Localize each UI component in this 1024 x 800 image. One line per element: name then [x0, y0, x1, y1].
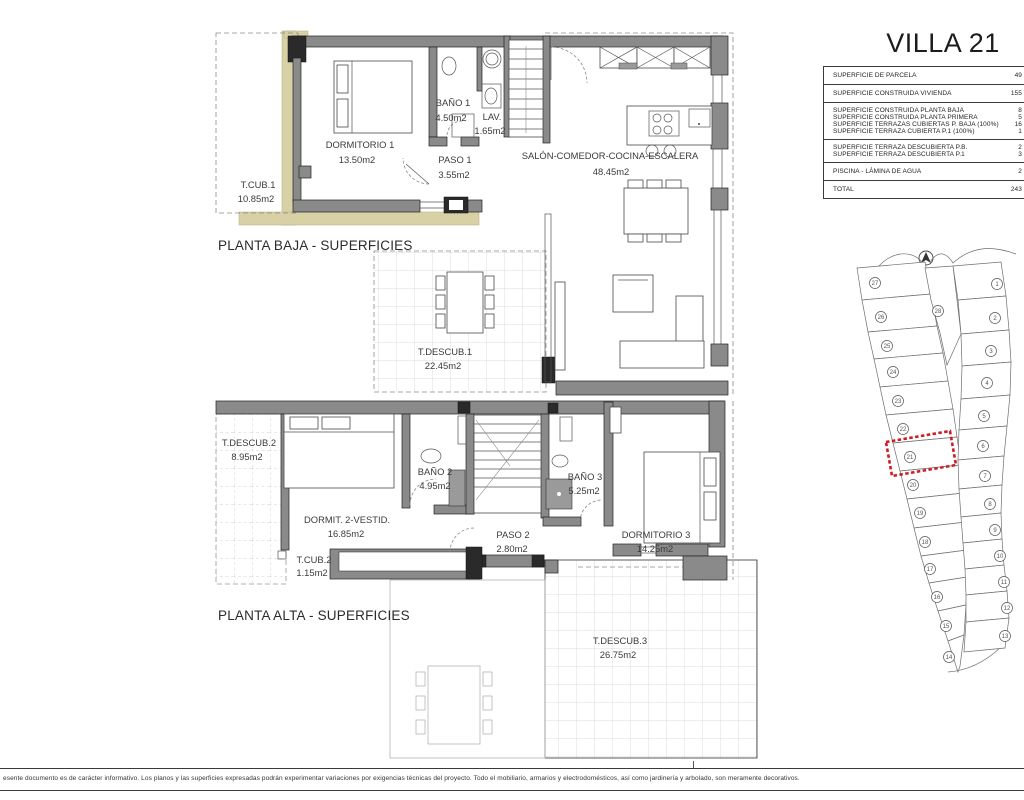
room-area: 1.15m2: [296, 567, 327, 578]
row-label: SUPERFICIE CONSTRUIDA PLANTA BAJA: [833, 107, 964, 114]
row-value: 8: [974, 107, 1022, 114]
villa-title: VILLA 21: [823, 28, 1024, 59]
bed-dormitorio3: [610, 407, 720, 543]
plot-number: 12: [1004, 606, 1011, 612]
table-group: TOTAL243: [824, 181, 1024, 199]
plot-number: 25: [884, 344, 891, 350]
plot-number: 16: [934, 595, 941, 601]
room-area: 26.75m2: [600, 649, 636, 660]
room-label: LAV.: [483, 111, 502, 122]
terrace-table: [436, 272, 494, 333]
room-area: 16.85m2: [328, 528, 364, 539]
room-label: SALÓN-COMEDOR-COCINA-ESCALERA: [522, 150, 699, 161]
plot-polygon: [958, 296, 1009, 334]
room-label: DORMITORIO 3: [622, 529, 691, 540]
room-label: DORMITORIO 1: [326, 139, 395, 150]
room-label: DORMIT. 2-VESTID.: [304, 514, 390, 525]
dining-table: [624, 180, 688, 242]
room-area: 10.85m2: [238, 193, 274, 204]
table-group: SUPERFICIE DE PARCELA49: [824, 67, 1024, 85]
table-row: SUPERFICIE DE PARCELA49: [824, 72, 1024, 79]
room-label: BAÑO 2: [418, 466, 452, 477]
room-area: 13.50m2: [339, 154, 375, 165]
plot-polygon: [857, 262, 931, 300]
plot-number: 19: [917, 511, 924, 517]
table-row: SUPERFICIE TERRAZA DESCUBIERTA P.13: [824, 151, 1024, 158]
table-row: SUPERFICIE CONSTRUIDA PLANTA PRIMERA5: [824, 114, 1024, 121]
plot-number: 22: [900, 427, 907, 433]
row-label: PISCINA - LÁMINA DE AGUA: [833, 168, 921, 175]
terrace-tdescub3: [545, 560, 757, 758]
row-value: 2: [974, 168, 1022, 175]
row-label: SUPERFICIE TERRAZA DESCUBIERTA P.B.: [833, 144, 968, 151]
upper-stairs: [474, 415, 541, 513]
room-label: PASO 1: [438, 154, 471, 165]
plot-number: 23: [895, 399, 902, 405]
room-area: 14.25m2: [637, 543, 673, 554]
disclaimer-text: esente documento es de carácter informat…: [3, 775, 800, 782]
ground-plan-caption: PLANTA BAJA - SUPERFICIES: [218, 238, 413, 253]
bath2-fixtures: [410, 416, 466, 506]
sliding-door-leaf: [555, 282, 565, 370]
row-value: 5: [974, 114, 1022, 121]
plot-number: 17: [927, 567, 934, 573]
table-row: SUPERFICIE TERRAZA CUBIERTA P.1 (100%)1: [824, 128, 1024, 135]
room-label: BAÑO 3: [568, 471, 602, 482]
table-row: SUPERFICIE TERRAZAS CUBIERTAS P. BAJA (1…: [824, 121, 1024, 128]
room-label: T.CUB.1: [241, 179, 276, 190]
room-label: PASO 2: [496, 529, 529, 540]
row-label: TOTAL: [833, 186, 854, 193]
row-value: 1: [974, 128, 1022, 135]
table-group: SUPERFICIE CONSTRUIDA PLANTA BAJA8SUPERF…: [824, 103, 1024, 140]
plot-number: 14: [946, 655, 953, 661]
plot-number: 26: [878, 315, 885, 321]
table-row: TOTAL243: [824, 186, 1024, 193]
outdoor-table: [416, 666, 492, 744]
table-row: PISCINA - LÁMINA DE AGUA2: [824, 168, 1024, 175]
kitchen-units: [600, 47, 710, 69]
room-area: 48.45m2: [593, 166, 629, 177]
ground-floor-plan: DORMITORIO 1 13.50m2 BAÑO 1 4.50m2 LAV. …: [216, 31, 733, 396]
row-value: 16: [974, 121, 1022, 128]
site-plan: 2726252423222120191817161514123456789101…: [857, 249, 1016, 672]
plot-number: 11: [1001, 580, 1008, 586]
room-area: 8.95m2: [231, 451, 262, 462]
plot-number: 20: [910, 483, 917, 489]
room-area: 1.65m2: [474, 125, 505, 136]
site-plots: 2726252423222120191817161514123456789101…: [857, 262, 1013, 672]
table-row: SUPERFICIE CONSTRUIDA PLANTA BAJA8: [824, 107, 1024, 114]
floorplan-sheet: DORMITORIO 1 13.50m2 BAÑO 1 4.50m2 LAV. …: [0, 0, 1024, 800]
room-area: 3.55m2: [438, 169, 469, 180]
table-group: PISCINA - LÁMINA DE AGUA2: [824, 163, 1024, 181]
row-value: 49: [974, 72, 1022, 79]
room-area: 2.80m2: [496, 543, 527, 554]
plot-number: 13: [1002, 634, 1009, 640]
row-label: SUPERFICIE CONSTRUIDA VIVIENDA: [833, 90, 952, 97]
plot-number: 21: [907, 455, 914, 461]
room-area: 22.45m2: [425, 360, 461, 371]
disclaimer-bar: esente documento es de carácter informat…: [0, 768, 1024, 791]
plot-number: 18: [922, 540, 929, 546]
plot-number: 28: [935, 309, 942, 315]
room-label: T.DESCUB.3: [593, 635, 647, 646]
row-label: SUPERFICIE TERRAZA DESCUBIERTA P.1: [833, 151, 965, 158]
bed-dormitorio2: [284, 414, 394, 488]
row-value: 155: [974, 90, 1022, 97]
room-label: T.DESCUB.2: [222, 437, 276, 448]
row-label: SUPERFICIE TERRAZA CUBIERTA P.1 (100%): [833, 128, 975, 135]
row-value: 2: [974, 144, 1022, 151]
room-label: T.CUB.2: [297, 554, 332, 565]
table-group: SUPERFICIE CONSTRUIDA VIVIENDA155: [824, 85, 1024, 103]
row-value: 243: [974, 186, 1022, 193]
room-label: T.DESCUB.1: [418, 346, 472, 357]
table-row: SUPERFICIE CONSTRUIDA VIVIENDA155: [824, 90, 1024, 97]
bath1-fixtures: [442, 50, 501, 137]
sofa-set: [613, 275, 704, 368]
plot-number: 27: [872, 281, 879, 287]
upper-plan-caption: PLANTA ALTA - SUPERFICIES: [218, 608, 410, 623]
ground-stairs: [509, 40, 543, 137]
bed-dormitorio1: [334, 61, 412, 133]
plot-number: 24: [890, 370, 897, 376]
table-group: SUPERFICIE TERRAZA DESCUBIERTA P.B.2SUPE…: [824, 140, 1024, 163]
surface-summary-table: SUPERFICIE DE PARCELA49SUPERFICIE CONSTR…: [823, 66, 1024, 199]
room-label: BAÑO 1: [436, 97, 470, 108]
plot-number: 10: [997, 554, 1004, 560]
room-area: 4.50m2: [435, 112, 466, 123]
plot-polygon: [862, 294, 937, 332]
table-row: SUPERFICIE TERRAZA DESCUBIERTA P.B.2: [824, 144, 1024, 151]
room-area: 5.25m2: [568, 485, 599, 496]
row-label: SUPERFICIE DE PARCELA: [833, 72, 917, 79]
plot-number: 15: [943, 624, 950, 630]
row-label: SUPERFICIE CONSTRUIDA PLANTA PRIMERA: [833, 114, 978, 121]
room-area: 4.95m2: [419, 480, 450, 491]
upper-floor-plan: T.DESCUB.2 8.95m2 DORMIT. 2-VESTID. 16.8…: [216, 401, 757, 758]
row-value: 3: [974, 151, 1022, 158]
plot-polygon: [959, 485, 1002, 517]
ghost-terrace-outline: [390, 580, 545, 758]
